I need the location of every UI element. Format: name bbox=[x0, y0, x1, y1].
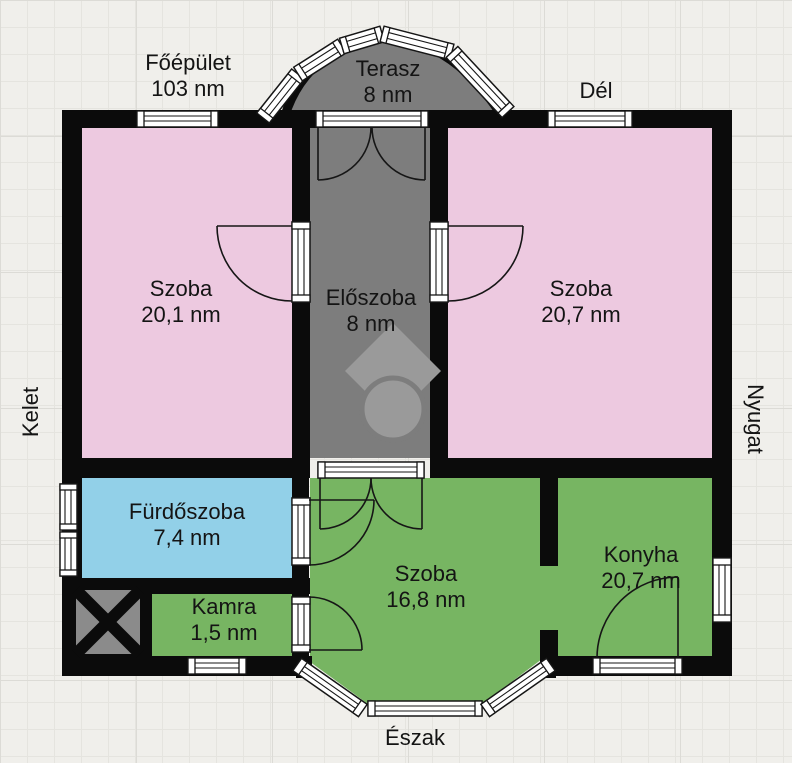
compass-west: Nyugat bbox=[743, 384, 768, 454]
room-eloszoba-area: 8 nm bbox=[347, 311, 396, 336]
room-szoba-also-label: Szoba bbox=[395, 561, 458, 586]
compass-east: Kelet bbox=[18, 387, 43, 437]
room-terasz-area: 8 nm bbox=[364, 82, 413, 107]
room-szoba-also-passage bbox=[540, 566, 558, 630]
room-kamra-area: 1,5 nm bbox=[190, 620, 257, 645]
building-label: Főépület bbox=[145, 50, 231, 75]
floorplan-canvas: Főépület 103 nm Terasz 8 nm Szoba 20,1 n… bbox=[0, 0, 792, 763]
window-top-right bbox=[548, 111, 632, 127]
room-szoba-jobb-area: 20,7 nm bbox=[541, 302, 621, 327]
room-szoba-jobb-label: Szoba bbox=[550, 276, 613, 301]
room-terasz-label: Terasz bbox=[356, 56, 421, 81]
room-furdoszoba-label: Fürdőszoba bbox=[129, 499, 246, 524]
compass-south: Dél bbox=[579, 78, 612, 103]
bay-window-center bbox=[368, 701, 482, 716]
room-konyha-area: 20,7 nm bbox=[601, 568, 681, 593]
building-area: 103 nm bbox=[151, 76, 224, 101]
window-right-konyha bbox=[713, 558, 731, 622]
room-szoba-also-area: 16,8 nm bbox=[386, 587, 466, 612]
room-konyha-label: Konyha bbox=[604, 542, 679, 567]
room-kamra-label: Kamra bbox=[192, 594, 258, 619]
room-furdoszoba-area: 7,4 nm bbox=[153, 525, 220, 550]
window-top-left bbox=[137, 111, 218, 127]
room-szoba-bal-label: Szoba bbox=[150, 276, 213, 301]
window-bottom-kamra bbox=[188, 658, 246, 674]
room-eloszoba-label: Előszoba bbox=[326, 285, 417, 310]
floorplan-svg: Főépület 103 nm Terasz 8 nm Szoba 20,1 n… bbox=[0, 0, 792, 763]
void-hatch-square bbox=[76, 590, 140, 654]
window-left-upper bbox=[60, 484, 77, 530]
compass-north: Észak bbox=[385, 725, 446, 750]
room-szoba-bal-area: 20,1 nm bbox=[141, 302, 221, 327]
room-konyha-floor bbox=[558, 478, 712, 656]
window-left-lower bbox=[60, 532, 77, 576]
